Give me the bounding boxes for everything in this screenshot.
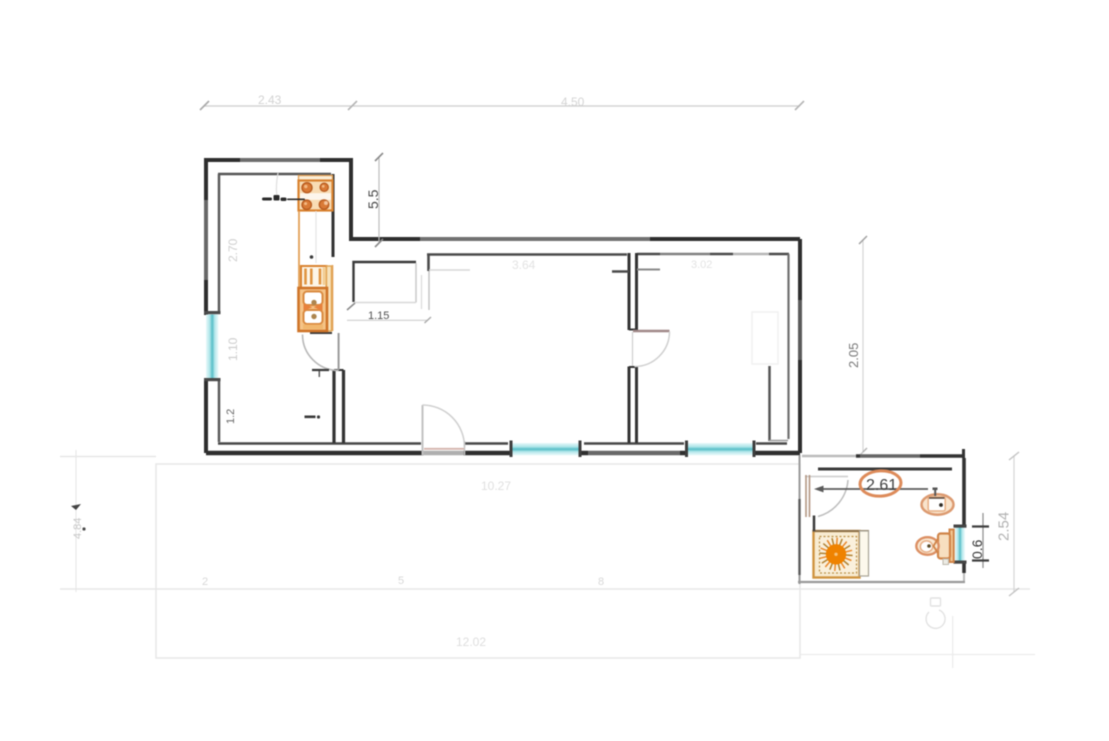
svg-text:3.64: 3.64 bbox=[512, 258, 536, 272]
svg-text:10.27: 10.27 bbox=[481, 479, 511, 493]
svg-text:2.05: 2.05 bbox=[846, 343, 861, 368]
svg-text:5: 5 bbox=[398, 575, 404, 587]
svg-text:0.6: 0.6 bbox=[969, 539, 985, 559]
svg-text:3.02: 3.02 bbox=[691, 259, 712, 271]
svg-text:5.5: 5.5 bbox=[365, 189, 381, 209]
svg-text:2.54: 2.54 bbox=[996, 512, 1013, 541]
svg-text:2.43: 2.43 bbox=[258, 93, 282, 107]
svg-text:4.50: 4.50 bbox=[561, 95, 585, 109]
svg-text:12.02: 12.02 bbox=[456, 635, 486, 649]
svg-text:4.84: 4.84 bbox=[72, 518, 84, 539]
svg-text:1.10: 1.10 bbox=[226, 337, 240, 361]
svg-text:2.61: 2.61 bbox=[866, 477, 897, 494]
svg-text:2: 2 bbox=[202, 576, 208, 588]
svg-text:1.15: 1.15 bbox=[368, 310, 389, 322]
svg-text:2.70: 2.70 bbox=[226, 238, 240, 262]
svg-text:8: 8 bbox=[598, 576, 604, 588]
svg-text:1.2: 1.2 bbox=[225, 409, 237, 424]
